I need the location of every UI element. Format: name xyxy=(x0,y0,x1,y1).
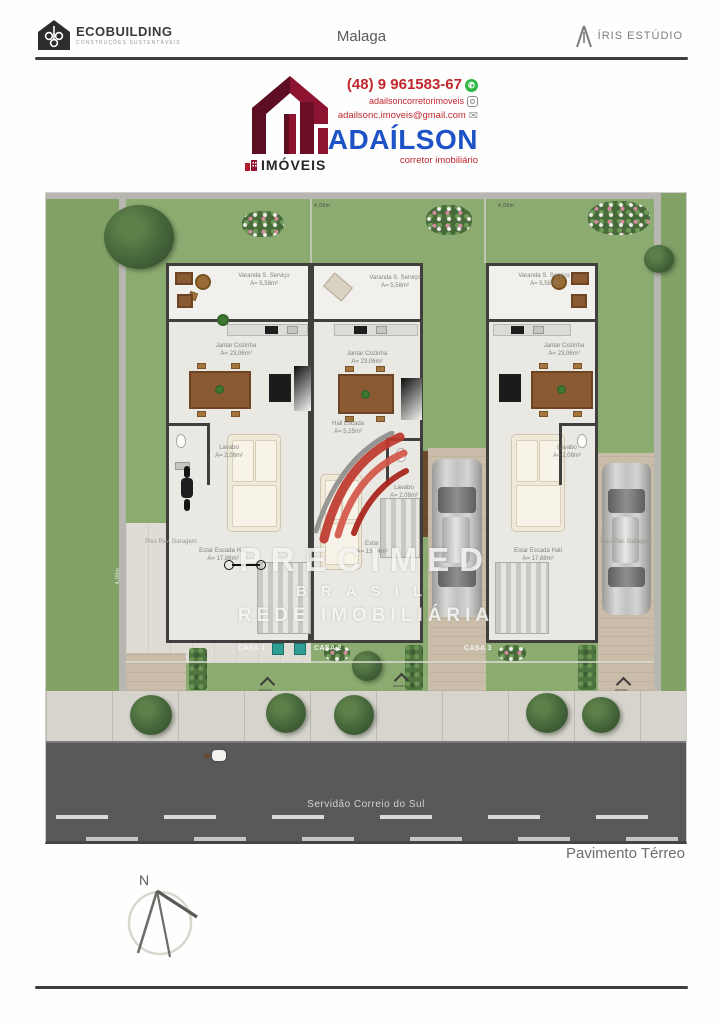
sidewalk-tree-1 xyxy=(130,695,172,735)
front-wall-line xyxy=(126,661,654,663)
flower-bush-1 xyxy=(242,211,284,237)
hedge-casa3 xyxy=(578,645,596,690)
header-rule xyxy=(35,57,688,60)
casa2-stair-gradient xyxy=(401,378,422,420)
flyer-page: ECOBUILDING CONSTRUÇÕES SUSTENTÁVEIS Mal… xyxy=(0,0,723,1024)
casa2-label: CASA 2 xyxy=(314,645,342,652)
casa3-label: CASA 3 xyxy=(464,645,492,652)
agent-name: ADAÍLSON xyxy=(318,126,478,154)
agency-label-row: IMÓVEIS xyxy=(245,157,326,173)
casa1-wall-lavabo xyxy=(169,423,209,426)
casa1-toilet xyxy=(176,434,186,448)
sidewalk-tree-2 xyxy=(266,693,306,733)
casa1-veranda-cabinet xyxy=(175,272,193,285)
casa1-chair-2 xyxy=(231,363,240,369)
casa1-sofa-cushion xyxy=(232,485,277,527)
casa1-veranda-table xyxy=(195,274,211,290)
watermark-feather-icon xyxy=(304,431,412,549)
casa1-chair-4 xyxy=(231,411,240,417)
phone-number: (48) 9 961583-67 xyxy=(347,76,462,93)
casa3-chair-1 xyxy=(539,363,548,369)
casa3-chair-2 xyxy=(573,363,582,369)
watermark-line1: PRECIMED xyxy=(46,541,686,579)
garden-tree-casa2 xyxy=(352,651,382,681)
phone-row: (48) 9 961583-67✆ xyxy=(318,76,478,93)
instagram-handle: adailsoncorretorimoveis xyxy=(369,96,464,106)
casa1-varanda-label: Varanda S. Serviço A= 5,58m² xyxy=(224,273,304,288)
site-plan: 4,00m 4,00m 4,00m xyxy=(45,192,687,844)
street: Servidão Correio do Sul xyxy=(46,741,686,843)
casa1-motorcycle xyxy=(179,466,195,512)
dimension-label-2: 4,00m xyxy=(498,203,514,209)
casa2-chair-1 xyxy=(345,366,354,372)
casa3-sofa-cushion xyxy=(516,485,561,527)
hedge-casa2 xyxy=(405,645,423,690)
casa1-stair-gradient xyxy=(294,366,311,411)
instagram-row: adailsoncorretorimoveis xyxy=(318,96,478,107)
casa1-chair-1 xyxy=(197,363,206,369)
lane-markings-2 xyxy=(86,837,686,841)
casa3-lavabo-label: Lavabo A= 2,08m² xyxy=(544,445,590,460)
access-label-1: acesso xyxy=(259,687,272,692)
email-address: adailsonc.imoveis@gmail.com xyxy=(338,110,466,121)
north-letter: N xyxy=(139,872,149,888)
casa3-wardrobe xyxy=(499,374,521,402)
access-label-3: acesso xyxy=(615,687,628,692)
sidewalk-tree-4 xyxy=(526,693,568,733)
garden-bush-casa3 xyxy=(498,645,526,661)
watermark-line3: REDE IMOBILIÁRIA xyxy=(46,605,686,627)
casa1-jantar-label: Jantar Cozinha A= 23,06m² xyxy=(196,343,276,358)
casa2-varanda-label: Varanda S. Serviço A= 5,58m² xyxy=(360,275,430,290)
flower-bush-2 xyxy=(426,205,472,235)
casa2-stove xyxy=(354,326,367,334)
casa3-sofa-cushion xyxy=(516,440,538,482)
casa2-jantar-label: Jantar Cozinha A= 23,06m² xyxy=(332,351,402,366)
casa1-sofa-cushion xyxy=(255,440,277,482)
email-row: adailsonc.imoveis@gmail.com✉ xyxy=(318,109,478,122)
casa3-table-plant xyxy=(557,385,566,394)
casa3-chair-4 xyxy=(573,411,582,417)
casa1-stove xyxy=(265,326,278,334)
small-tree-right xyxy=(644,245,674,273)
sidewalk-tree-5 xyxy=(582,697,620,733)
building-icon xyxy=(245,160,257,171)
north-compass: N xyxy=(115,865,210,965)
casa2-sink xyxy=(376,326,387,334)
gate-2 xyxy=(294,643,306,655)
iris-estudio-name: ÍRIS ESTÚDIO xyxy=(598,30,683,42)
casa3-chair-3 xyxy=(539,411,548,417)
envelope-icon: ✉ xyxy=(469,110,478,122)
tripod-icon xyxy=(575,24,593,48)
pedestrian xyxy=(204,749,230,763)
agency-label: IMÓVEIS xyxy=(261,157,326,173)
hedge-casa1 xyxy=(189,648,207,690)
casa3-kitchen-counter xyxy=(493,324,571,336)
iris-estudio-brand: ÍRIS ESTÚDIO xyxy=(575,24,683,48)
casa1-lavabo-label: Lavabo A= 2,08m² xyxy=(206,445,252,460)
flower-bush-3 xyxy=(588,201,650,235)
lot-divider-1 xyxy=(310,199,312,263)
casa3-varanda-label: Varanda S. Serviço A= 5,58m² xyxy=(504,273,584,288)
casa1-veranda-chest xyxy=(177,294,193,308)
access-label-2: acesso xyxy=(393,683,406,688)
floor-label: Pavimento Térreo xyxy=(566,845,685,862)
contact-column: (48) 9 961583-67✆ adailsoncorretorimovei… xyxy=(318,76,478,166)
dimension-label-1: 4,00m xyxy=(314,203,330,209)
large-tree xyxy=(104,205,174,269)
gate-1 xyxy=(272,643,284,655)
casa1-sink xyxy=(287,326,298,334)
sidewalk-tree-3 xyxy=(334,695,374,735)
agent-title: corretor imobiliário xyxy=(318,155,478,166)
casa1-label: CASA 1 xyxy=(238,645,266,652)
casa2-table-plant xyxy=(361,390,370,399)
casa1-chair-3 xyxy=(197,411,206,417)
watermark-line2: BRASIL xyxy=(46,583,686,600)
whatsapp-icon: ✆ xyxy=(465,79,478,92)
casa3-jantar-label: Jantar Cozinha A= 23,06m² xyxy=(524,343,604,358)
casa1-table-plant xyxy=(215,385,224,394)
lot-divider-2 xyxy=(484,199,486,263)
instagram-icon xyxy=(467,96,478,107)
casa1-front-driveway xyxy=(126,653,186,691)
casa1-plant xyxy=(217,314,229,326)
casa3-veranda-chest xyxy=(571,294,587,308)
footer-rule xyxy=(35,986,688,989)
casa3-wall-lavabo xyxy=(559,423,595,426)
path-top xyxy=(46,193,686,199)
street-name: Servidão Correio do Sul xyxy=(46,799,686,810)
casa2-chair-2 xyxy=(376,366,385,372)
lane-markings xyxy=(56,815,676,819)
casa1-wardrobe xyxy=(269,374,291,402)
casa3-sink xyxy=(533,326,544,334)
casa3-stove xyxy=(511,326,524,334)
